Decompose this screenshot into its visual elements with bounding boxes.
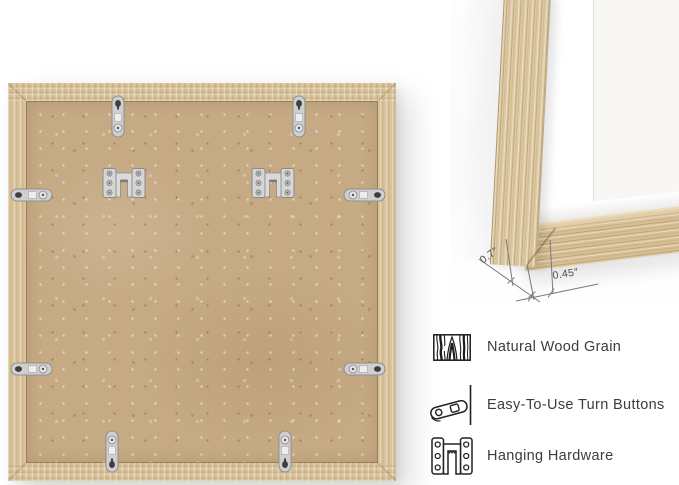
turn-button <box>292 95 306 138</box>
mdf-back-panel <box>26 101 378 463</box>
frame-corner-detail-photo: 0.7″ 0.45″ <box>450 0 679 318</box>
feature-label: Easy-To-Use Turn Buttons <box>487 397 665 414</box>
miter-joint <box>378 463 396 481</box>
turn-button <box>105 430 119 473</box>
extension-line <box>550 240 553 294</box>
dimension-label-depth: 0.7″ <box>478 245 501 266</box>
miter-joint <box>8 83 26 101</box>
hanging-hardware <box>102 167 146 199</box>
tick-mark <box>508 278 515 284</box>
hanging-hardware <box>251 167 295 199</box>
mat-opening-area <box>594 0 679 216</box>
feature-item-turn-buttons: Easy-To-Use Turn Buttons <box>428 382 679 428</box>
turn-button <box>10 362 53 376</box>
turn-button <box>278 430 292 473</box>
frame-top-rail <box>8 83 396 101</box>
miter-joint <box>8 463 26 481</box>
mat-opening-edge <box>593 0 594 216</box>
wood-grain-icon <box>428 334 476 361</box>
feature-label: Natural Wood Grain <box>487 339 621 356</box>
product-image: 0.7″ 0.45″ Natural Wood G <box>0 0 679 485</box>
feature-item-hanging-hardware: Hanging Hardware <box>428 433 679 479</box>
turn-button <box>343 362 386 376</box>
turn-button <box>111 95 125 138</box>
hanging-hardware-icon <box>428 436 476 476</box>
dimension-line-face <box>516 284 598 301</box>
feature-item-wood-grain: Natural Wood Grain <box>428 324 679 370</box>
turn-button <box>10 188 53 202</box>
frame-back-photo <box>8 83 396 481</box>
miter-joint <box>378 83 396 101</box>
frame-bottom-rail <box>8 463 396 481</box>
turn-button-icon <box>428 383 476 427</box>
feature-label: Hanging Hardware <box>487 448 614 465</box>
dimension-label-face-width: 0.45″ <box>552 266 580 282</box>
turn-button <box>343 188 386 202</box>
dimension-annotations: 0.7″ 0.45″ <box>450 225 679 318</box>
